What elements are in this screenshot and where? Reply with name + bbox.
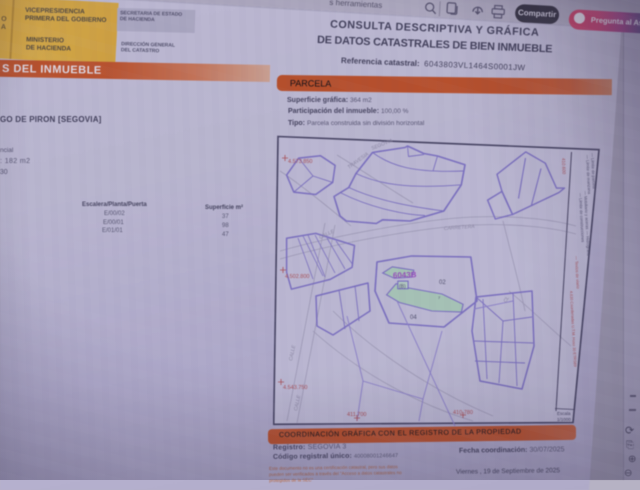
svg-text:02: 02 — [439, 280, 446, 286]
svg-text:6043B: 6043B — [393, 270, 417, 280]
svg-text:4.502.800: 4.502.800 — [285, 274, 309, 280]
svg-text:04: 04 — [410, 315, 417, 321]
svg-text:410.780: 410.780 — [453, 410, 473, 416]
svg-text:410.600: 410.600 — [561, 157, 567, 174]
svg-text:Escala: Escala — [557, 411, 571, 416]
svg-text:(B): (B) — [399, 284, 406, 290]
svg-text:4.573.850: 4.573.850 — [288, 159, 312, 165]
svg-text:411.700: 411.700 — [347, 412, 366, 418]
svg-text:1/1000: 1/1000 — [557, 417, 571, 422]
svg-text:4.543.750: 4.543.750 — [283, 385, 307, 391]
